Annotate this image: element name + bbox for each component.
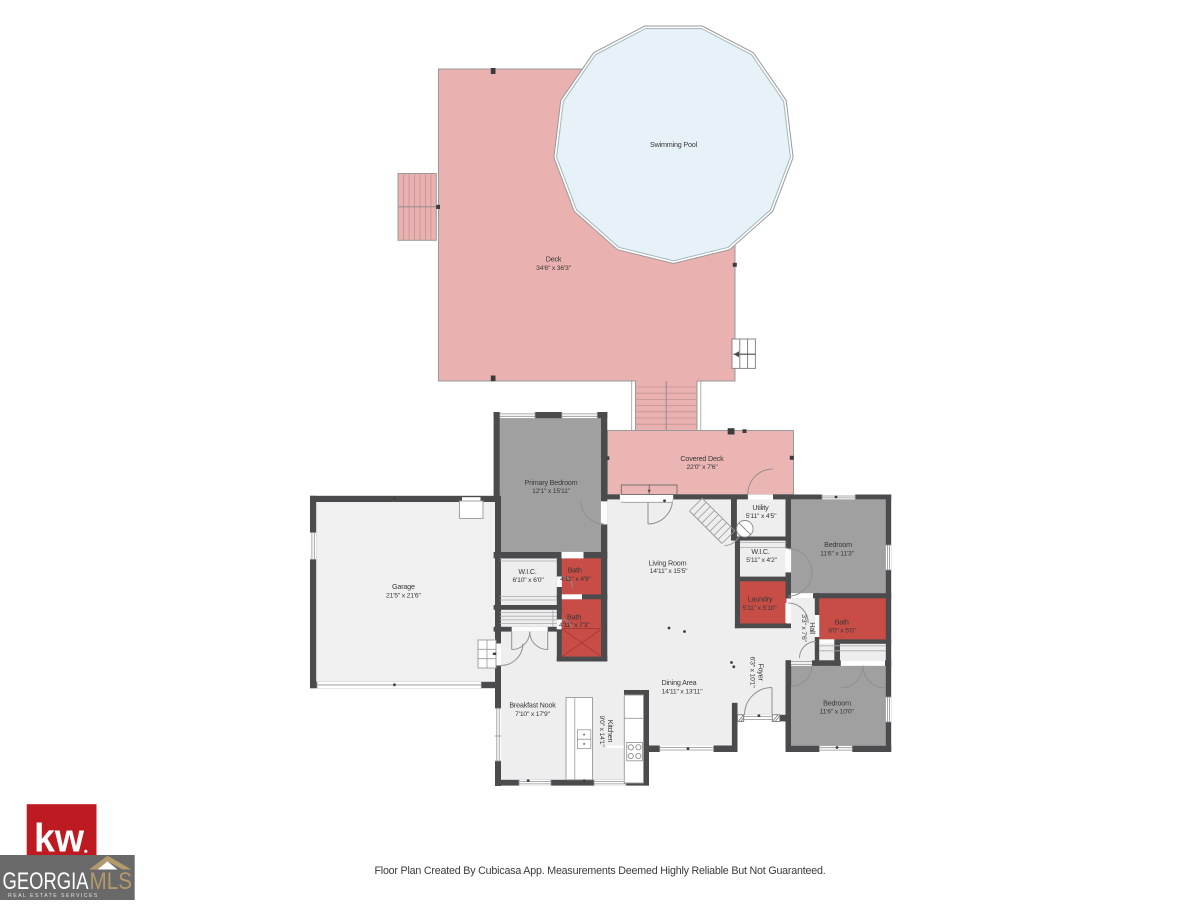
svg-text:Living Room: Living Room: [649, 559, 687, 568]
svg-text:Covered Deck: Covered Deck: [680, 454, 724, 463]
svg-text:Hall: Hall: [808, 622, 817, 634]
svg-text:Laundry: Laundry: [748, 595, 773, 604]
svg-text:Garage: Garage: [392, 582, 415, 591]
svg-text:3'3" x 7'6": 3'3" x 7'6": [800, 614, 807, 642]
svg-text:GEORGIA: GEORGIA: [3, 868, 89, 895]
svg-text:11'6" x 10'0": 11'6" x 10'0": [820, 709, 855, 716]
svg-text:kw: kw: [34, 817, 85, 861]
svg-text:Swimming Pool: Swimming Pool: [650, 140, 698, 149]
svg-text:Dining Area: Dining Area: [662, 678, 697, 687]
svg-text:Bedroom: Bedroom: [823, 699, 851, 708]
svg-text:11'6" x 11'3": 11'6" x 11'3": [820, 550, 854, 557]
svg-text:Bath: Bath: [835, 618, 849, 627]
svg-text:Utility: Utility: [752, 503, 769, 512]
svg-text:9'0" x 14'1": 9'0" x 14'1": [598, 715, 605, 747]
svg-text:34'6" x 36'3": 34'6" x 36'3": [536, 265, 571, 272]
svg-text:22'0" x 7'6": 22'0" x 7'6": [686, 464, 718, 471]
svg-text:8'0" x 5'0": 8'0" x 5'0": [828, 627, 856, 634]
svg-text:Primary Bedroom: Primary Bedroom: [525, 478, 578, 487]
svg-text:5'11" x 4'2": 5'11" x 4'2": [746, 557, 777, 564]
svg-text:21'5" x 21'6": 21'5" x 21'6": [386, 593, 421, 600]
svg-text:REAL ESTATE SERVICES: REAL ESTATE SERVICES: [8, 893, 99, 899]
svg-text:Bath: Bath: [568, 566, 582, 575]
svg-text:14'11" x 15'5": 14'11" x 15'5": [650, 568, 689, 575]
svg-text:5'11" x 4'5": 5'11" x 4'5": [746, 513, 777, 520]
svg-text:6'3" x 10'1": 6'3" x 10'1": [749, 656, 756, 688]
svg-text:Floor Plan Created By Cubicasa: Floor Plan Created By Cubicasa App. Meas…: [374, 865, 825, 877]
svg-text:Breakfast Nook: Breakfast Nook: [509, 701, 556, 710]
svg-text:4'11" x 4'9": 4'11" x 4'9": [560, 576, 591, 583]
svg-text:Kitchen: Kitchen: [606, 720, 615, 743]
svg-text:12'1" x 15'11": 12'1" x 15'11": [532, 488, 571, 495]
svg-text:14'11" x 13'11": 14'11" x 13'11": [662, 689, 704, 696]
svg-text:7'10" x 17'9": 7'10" x 17'9": [515, 711, 550, 718]
svg-text:Deck: Deck: [546, 255, 562, 264]
svg-text:6'10" x 6'0": 6'10" x 6'0": [512, 577, 544, 584]
svg-text:MLS: MLS: [90, 868, 133, 895]
svg-text:W.I.C.: W.I.C.: [518, 567, 537, 576]
svg-text:Foyer: Foyer: [757, 663, 766, 681]
svg-text:Bedroom: Bedroom: [824, 540, 852, 549]
svg-text:Bath: Bath: [567, 613, 581, 622]
svg-text:5'11" x 5'10": 5'11" x 5'10": [742, 605, 777, 612]
svg-text:4'11" x 7'3": 4'11" x 7'3": [559, 622, 590, 629]
svg-text:W.I.C.: W.I.C.: [751, 547, 770, 556]
